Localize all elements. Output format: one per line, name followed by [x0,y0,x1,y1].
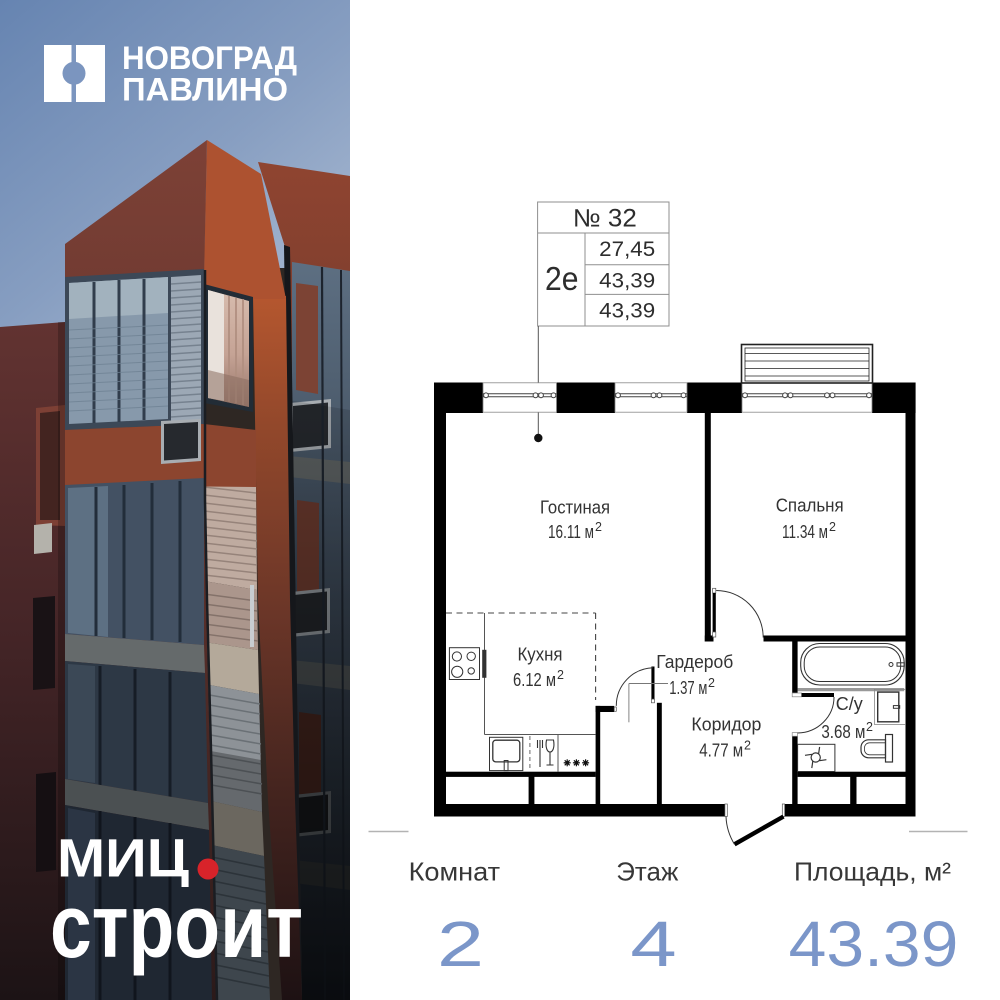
svg-text:2: 2 [595,520,602,534]
svg-text:Гардероб: Гардероб [656,651,733,672]
svg-text:С/у: С/у [836,693,864,714]
svg-text:3.68 м: 3.68 м [821,721,865,742]
svg-text:Кухня: Кухня [518,644,563,665]
svg-text:43,39: 43,39 [599,300,655,323]
svg-text:27,45: 27,45 [599,238,655,261]
svg-text:строит: строит [50,877,303,977]
svg-text:2: 2 [866,720,873,734]
svg-text:4.77 м: 4.77 м [699,740,743,761]
svg-text:2: 2 [829,520,836,534]
svg-text:16.11 м: 16.11 м [548,521,594,542]
svg-text:2: 2 [437,908,484,980]
svg-text:Этаж: Этаж [616,857,679,887]
svg-text:2: 2 [744,739,751,753]
svg-text:Комнат: Комнат [409,857,501,887]
svg-text:Площадь, м²: Площадь, м² [794,857,951,887]
svg-text:Коридор: Коридор [691,714,761,735]
svg-text:2: 2 [557,668,564,682]
svg-text:№ 32: № 32 [573,205,637,233]
svg-text:Спальня: Спальня [776,495,844,516]
svg-text:43.39: 43.39 [789,908,959,980]
svg-text:2: 2 [708,676,715,690]
svg-text:2е: 2е [545,260,579,297]
svg-text:4: 4 [630,908,676,980]
svg-text:6.12 м: 6.12 м [513,669,556,690]
svg-text:Гостиная: Гостиная [540,497,610,518]
svg-text:1.37 м: 1.37 м [669,677,707,698]
svg-text:43,39: 43,39 [599,269,655,292]
svg-text:ПАВЛИНО: ПАВЛИНО [122,72,288,108]
svg-text:11.34 м: 11.34 м [782,521,828,542]
